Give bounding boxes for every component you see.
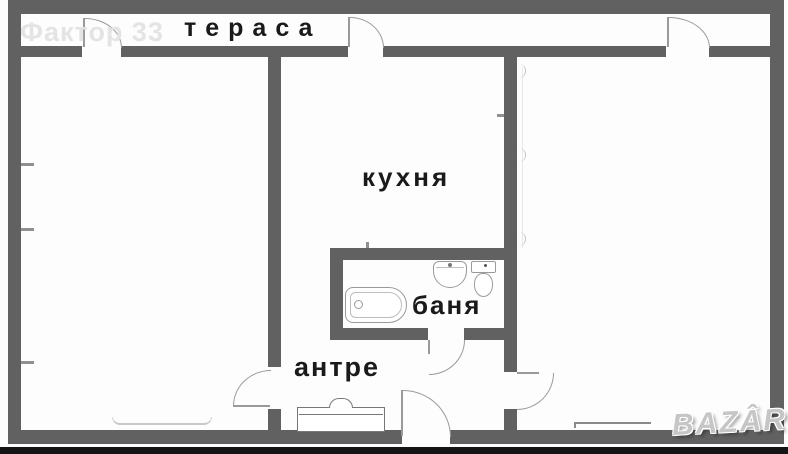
- toilet-flush-dot: [484, 264, 487, 267]
- wall-tick-left-1: [21, 163, 34, 166]
- wall-outer-left: [8, 0, 21, 444]
- entrance-door-arc: [403, 390, 451, 437]
- wall-bathroom-bottom-segment-1: [330, 328, 428, 340]
- wardrobe-top-line: [299, 414, 383, 415]
- wall-livingroom-kitchen-divider: [268, 46, 281, 367]
- watermark-bazar-logo: BAZÂR: [671, 403, 788, 443]
- faint-mark-bedroom-2: [519, 148, 526, 162]
- wall-kitchen-bedroom-divider: [504, 46, 517, 372]
- sink-rim-line: [436, 267, 464, 268]
- faint-mark-bedroom-1: [519, 64, 526, 78]
- kitchen-label: кухня: [362, 164, 450, 190]
- wall-tick-bathroom-top: [366, 242, 369, 248]
- wall-tick-left-3: [21, 361, 34, 364]
- bathroom-door-arc: [429, 340, 465, 375]
- wall-bathroom-bottom-segment-2: [464, 328, 517, 340]
- wall-bathroom-left: [330, 248, 343, 340]
- wall-tick-kitchen: [497, 114, 504, 117]
- radiator-bedroom: [574, 422, 651, 428]
- wall-outer-top: [8, 0, 784, 14]
- hallway-label: антре: [294, 354, 380, 381]
- bathroom-label: баня: [412, 292, 481, 318]
- terrace-door-3-arc: [669, 17, 710, 48]
- bathtub-drain: [354, 300, 363, 309]
- wall-terrace-segment-3: [383, 46, 666, 57]
- wall-tick-left-2: [21, 228, 34, 231]
- sofa-outline-faint: [112, 417, 212, 425]
- wall-outer-bottom-left-segment: [8, 430, 402, 444]
- wall-livingroom-door-stub: [268, 409, 281, 430]
- wall-bathroom-top: [330, 248, 517, 260]
- terrace-door-2-arc: [350, 17, 384, 48]
- wardrobe-knob-bump: [329, 398, 353, 408]
- bedroom-door-arc: [517, 373, 554, 410]
- wall-bedroom-door-stub: [504, 409, 517, 430]
- toilet-tank: [471, 261, 496, 273]
- livingroom-door-arc: [233, 370, 271, 406]
- sink-faucet-dot: [448, 263, 452, 267]
- faint-mark-bedroom-3: [519, 232, 526, 246]
- wardrobe: [297, 407, 385, 432]
- terrace-label: тераса: [184, 16, 321, 41]
- watermark-faktor33: Фактор 33: [20, 17, 164, 48]
- bottom-black-bar: [0, 447, 788, 454]
- floorplan: тераса кухня баня антре Фактор 33 BAZÂR: [0, 0, 788, 454]
- wall-terrace-segment-4: [709, 46, 770, 57]
- wall-outer-right: [770, 0, 784, 444]
